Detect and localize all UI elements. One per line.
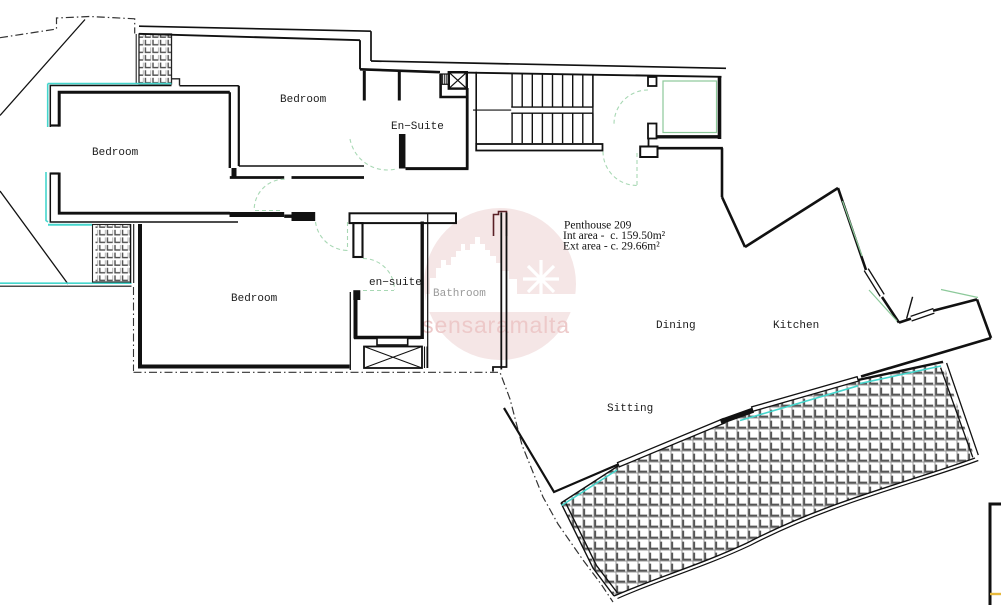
svg-text:Bedroom: Bedroom (231, 293, 278, 305)
svg-text:Sitting: Sitting (607, 403, 653, 415)
svg-text:sensaramalta: sensaramalta (422, 312, 570, 338)
svg-text:en−suite: en−suite (369, 277, 422, 289)
svg-text:Bathroom: Bathroom (433, 288, 486, 300)
svg-text:En−Suite: En−Suite (391, 121, 444, 133)
svg-text:Ext area - c. 29.66m²: Ext area - c. 29.66m² (563, 241, 660, 253)
svg-text:Bedroom: Bedroom (280, 94, 327, 106)
svg-text:Kitchen: Kitchen (773, 320, 819, 332)
svg-text:Bedroom: Bedroom (92, 147, 139, 159)
svg-text:Dining: Dining (656, 320, 696, 332)
